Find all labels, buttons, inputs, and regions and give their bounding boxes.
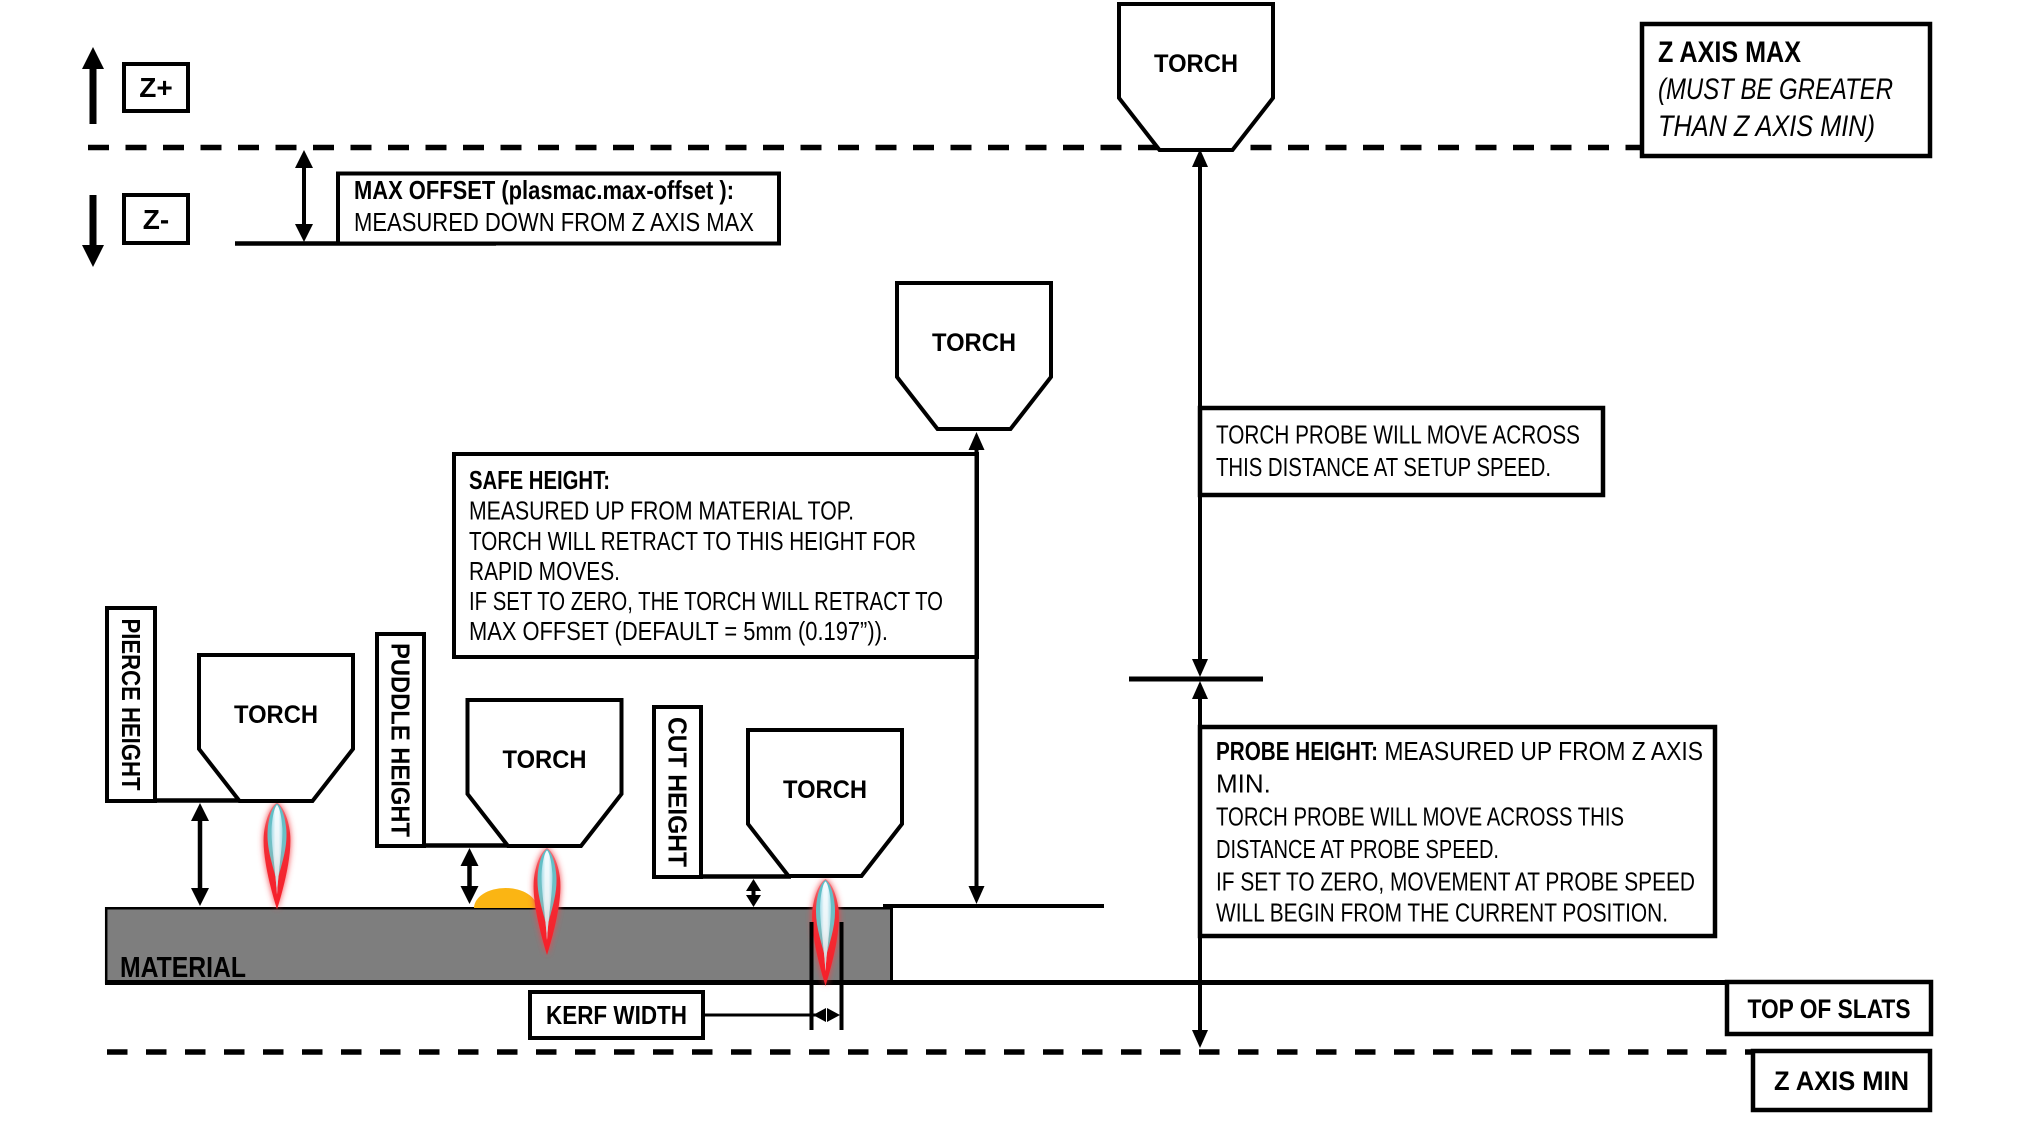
svg-text:CUT HEIGHT: CUT HEIGHT bbox=[663, 717, 693, 867]
svg-text:IF SET TO ZERO, THE TORCH WILL: IF SET TO ZERO, THE TORCH WILL RETRACT T… bbox=[469, 586, 943, 616]
svg-text:MATERIAL: MATERIAL bbox=[120, 952, 246, 984]
svg-text:MEASURED UP FROM MATERIAL TOP.: MEASURED UP FROM MATERIAL TOP. bbox=[469, 496, 854, 526]
svg-text:DISTANCE AT PROBE SPEED.: DISTANCE AT PROBE SPEED. bbox=[1216, 834, 1499, 864]
svg-text:KERF WIDTH: KERF WIDTH bbox=[546, 1000, 687, 1030]
svg-text:(MUST BE GREATER: (MUST BE GREATER bbox=[1658, 73, 1893, 106]
svg-text:PUDDLE HEIGHT: PUDDLE HEIGHT bbox=[386, 643, 416, 837]
svg-text:PIERCE HEIGHT: PIERCE HEIGHT bbox=[116, 619, 146, 791]
svg-text:THAN Z AXIS MIN): THAN Z AXIS MIN) bbox=[1658, 110, 1875, 143]
svg-text:WILL BEGIN FROM THE CURRENT PO: WILL BEGIN FROM THE CURRENT POSITION. bbox=[1216, 898, 1668, 928]
svg-text:MAX OFFSET (plasmac.max-offset: MAX OFFSET (plasmac.max-offset ): bbox=[354, 175, 734, 205]
svg-text:TORCH: TORCH bbox=[1154, 50, 1238, 78]
svg-text:TORCH: TORCH bbox=[783, 776, 867, 804]
svg-text:SAFE HEIGHT:: SAFE HEIGHT: bbox=[469, 465, 610, 495]
svg-text:TORCH PROBE WILL MOVE ACROSS T: TORCH PROBE WILL MOVE ACROSS THIS bbox=[1216, 802, 1624, 832]
svg-text:TORCH: TORCH bbox=[932, 329, 1016, 357]
svg-text:TORCH: TORCH bbox=[234, 701, 318, 729]
svg-text:MEASURED DOWN FROM Z AXIS MAX: MEASURED DOWN FROM Z AXIS MAX bbox=[354, 207, 754, 237]
svg-text:TORCH PROBE WILL MOVE ACROSS: TORCH PROBE WILL MOVE ACROSS bbox=[1216, 420, 1580, 450]
svg-text:Z AXIS MIN: Z AXIS MIN bbox=[1774, 1066, 1909, 1096]
svg-text:TOP OF SLATS: TOP OF SLATS bbox=[1748, 994, 1911, 1024]
svg-text:Z AXIS MAX: Z AXIS MAX bbox=[1658, 36, 1801, 69]
svg-text:Z+: Z+ bbox=[139, 72, 172, 103]
svg-text:RAPID MOVES.: RAPID MOVES. bbox=[469, 556, 620, 586]
svg-text:TORCH: TORCH bbox=[503, 746, 587, 774]
svg-text:THIS DISTANCE AT SETUP SPEED.: THIS DISTANCE AT SETUP SPEED. bbox=[1216, 452, 1551, 482]
svg-text:MIN.: MIN. bbox=[1216, 769, 1271, 799]
svg-text:Z-: Z- bbox=[143, 204, 169, 235]
svg-text:MAX OFFSET (DEFAULT = 5mm (0.1: MAX OFFSET (DEFAULT = 5mm (0.197”)). bbox=[469, 616, 888, 646]
svg-text:IF SET TO ZERO, MOVEMENT AT P: IF SET TO ZERO, MOVEMENT AT PROBE SPEED bbox=[1216, 867, 1695, 897]
svg-text:TORCH WILL RETRACT TO THIS HEI: TORCH WILL RETRACT TO THIS HEIGHT FOR bbox=[469, 526, 916, 556]
svg-text:PROBE HEIGHT: MEASURED UP FROM: PROBE HEIGHT: MEASURED UP FROM Z AXIS bbox=[1216, 736, 1703, 766]
